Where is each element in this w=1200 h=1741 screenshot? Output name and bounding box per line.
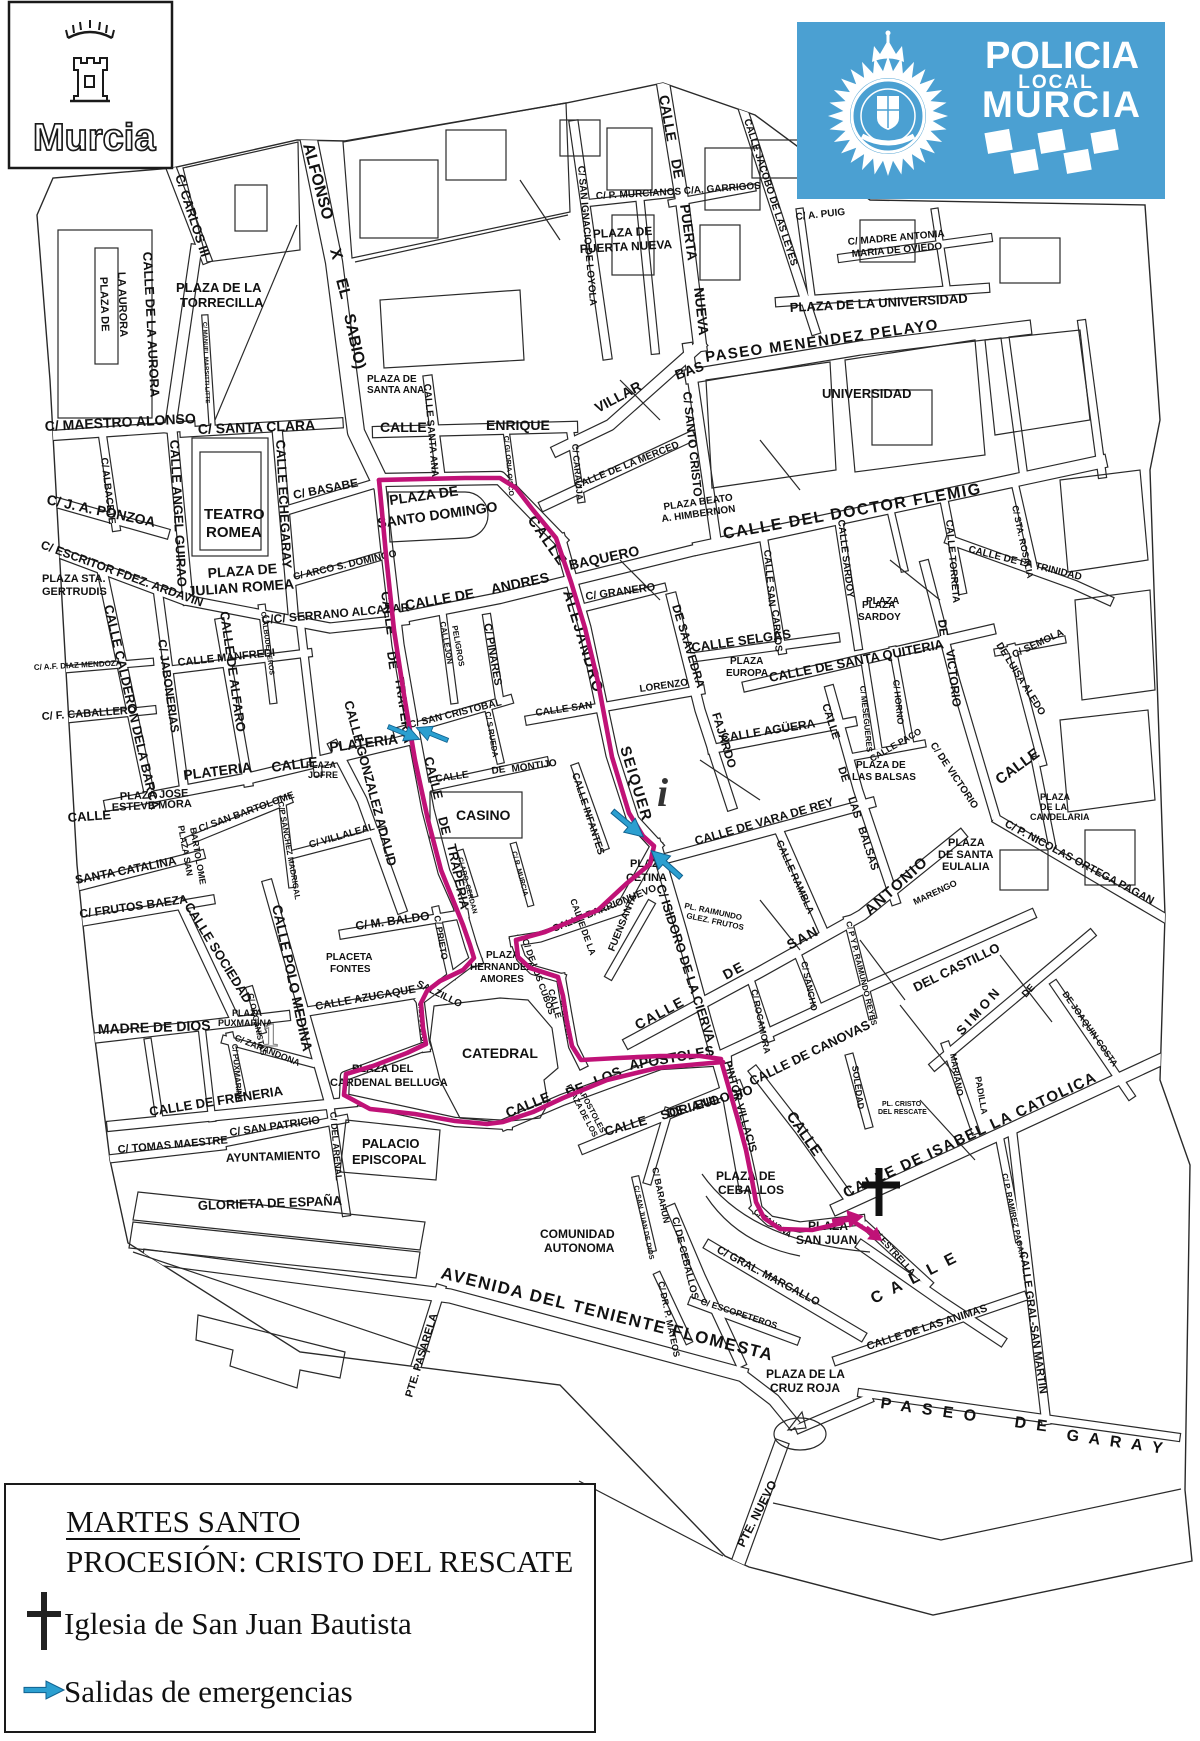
svg-text:SARDOY: SARDOY bbox=[858, 612, 901, 623]
svg-text:ENRIQUE: ENRIQUE bbox=[486, 417, 550, 433]
svg-text:DE LA: DE LA bbox=[1040, 802, 1068, 812]
svg-text:PLAZA: PLAZA bbox=[1040, 792, 1070, 802]
svg-text:UNIVERSIDAD: UNIVERSIDAD bbox=[822, 386, 912, 401]
svg-text:PLAZA: PLAZA bbox=[306, 760, 336, 770]
svg-text:CALLE: CALLE bbox=[67, 807, 112, 825]
svg-text:POLICIA: POLICIA bbox=[985, 35, 1139, 77]
svg-text:SAN JUAN: SAN JUAN bbox=[796, 1233, 857, 1247]
svg-text:COMUNIDAD: COMUNIDAD bbox=[540, 1227, 615, 1241]
svg-text:PLAZA DE: PLAZA DE bbox=[97, 277, 111, 332]
svg-text:PROCESIÓN: CRISTO DEL RESCATE: PROCESIÓN: CRISTO DEL RESCATE bbox=[66, 1544, 573, 1579]
svg-text:PLAZA: PLAZA bbox=[948, 837, 985, 849]
svg-text:GERTRUDIS: GERTRUDIS bbox=[42, 586, 107, 598]
svg-text:DE: DE bbox=[491, 764, 507, 777]
svg-text:MURCIA: MURCIA bbox=[982, 84, 1142, 125]
svg-text:PLAZA DE LA: PLAZA DE LA bbox=[766, 1367, 845, 1381]
svg-text:LAS BALSAS: LAS BALSAS bbox=[852, 772, 916, 783]
svg-text:EUROPA: EUROPA bbox=[726, 668, 768, 679]
svg-text:LA AURORA: LA AURORA bbox=[115, 272, 129, 338]
svg-text:PLAZA DE: PLAZA DE bbox=[716, 1169, 776, 1183]
svg-text:CRUZ ROJA: CRUZ ROJA bbox=[770, 1381, 840, 1395]
svg-text:i: i bbox=[657, 770, 668, 815]
svg-text:CATEDRAL: CATEDRAL bbox=[462, 1045, 538, 1061]
svg-text:PLAZA DE: PLAZA DE bbox=[856, 760, 906, 771]
svg-text:PL. CRISTO: PL. CRISTO bbox=[882, 1101, 922, 1108]
svg-text:Iglesia de San Juan Bautista: Iglesia de San Juan Bautista bbox=[64, 1606, 412, 1641]
svg-text:PLAZA: PLAZA bbox=[866, 596, 899, 607]
svg-text:PLAZA: PLAZA bbox=[730, 656, 763, 667]
svg-text:DEL RESCATE: DEL RESCATE bbox=[878, 1109, 927, 1116]
svg-text:DE: DE bbox=[935, 619, 951, 637]
svg-text:DE: DE bbox=[668, 158, 687, 180]
svg-text:CASINO: CASINO bbox=[456, 807, 511, 823]
svg-text:EPISCOPAL: EPISCOPAL bbox=[352, 1152, 426, 1167]
svg-text:CALLE: CALLE bbox=[380, 419, 427, 435]
svg-text:PLAZA: PLAZA bbox=[486, 950, 519, 961]
svg-text:EULALIA: EULALIA bbox=[942, 861, 990, 873]
svg-text:PALACIO: PALACIO bbox=[362, 1136, 420, 1151]
svg-text:Salidas de emergencias: Salidas de emergencias bbox=[64, 1674, 353, 1709]
svg-text:CANDELARIA: CANDELARIA bbox=[1030, 812, 1090, 822]
svg-text:FONTES: FONTES bbox=[330, 964, 371, 975]
svg-text:TEATRO: TEATRO bbox=[204, 506, 265, 523]
svg-text:PLACETA: PLACETA bbox=[326, 952, 372, 963]
svg-text:AUTONOMA: AUTONOMA bbox=[544, 1241, 615, 1255]
svg-text:TORRECILLA: TORRECILLA bbox=[180, 295, 264, 310]
svg-text:PLAZA DE LA: PLAZA DE LA bbox=[176, 280, 262, 295]
svg-text:PLAZA STA.: PLAZA STA. bbox=[42, 573, 106, 585]
svg-text:AMORES: AMORES bbox=[480, 974, 524, 985]
svg-text:SANTA ANA: SANTA ANA bbox=[367, 385, 424, 396]
svg-text:ROMEA: ROMEA bbox=[206, 524, 262, 541]
svg-text:DE SANTA: DE SANTA bbox=[938, 849, 993, 861]
svg-text:1: 1 bbox=[262, 1017, 279, 1054]
svg-text:PLAZA DE: PLAZA DE bbox=[367, 374, 417, 385]
svg-text:MARTES SANTO: MARTES SANTO bbox=[66, 1504, 300, 1539]
svg-text:Murcia: Murcia bbox=[33, 117, 156, 159]
svg-text:JOFRE: JOFRE bbox=[308, 770, 338, 780]
